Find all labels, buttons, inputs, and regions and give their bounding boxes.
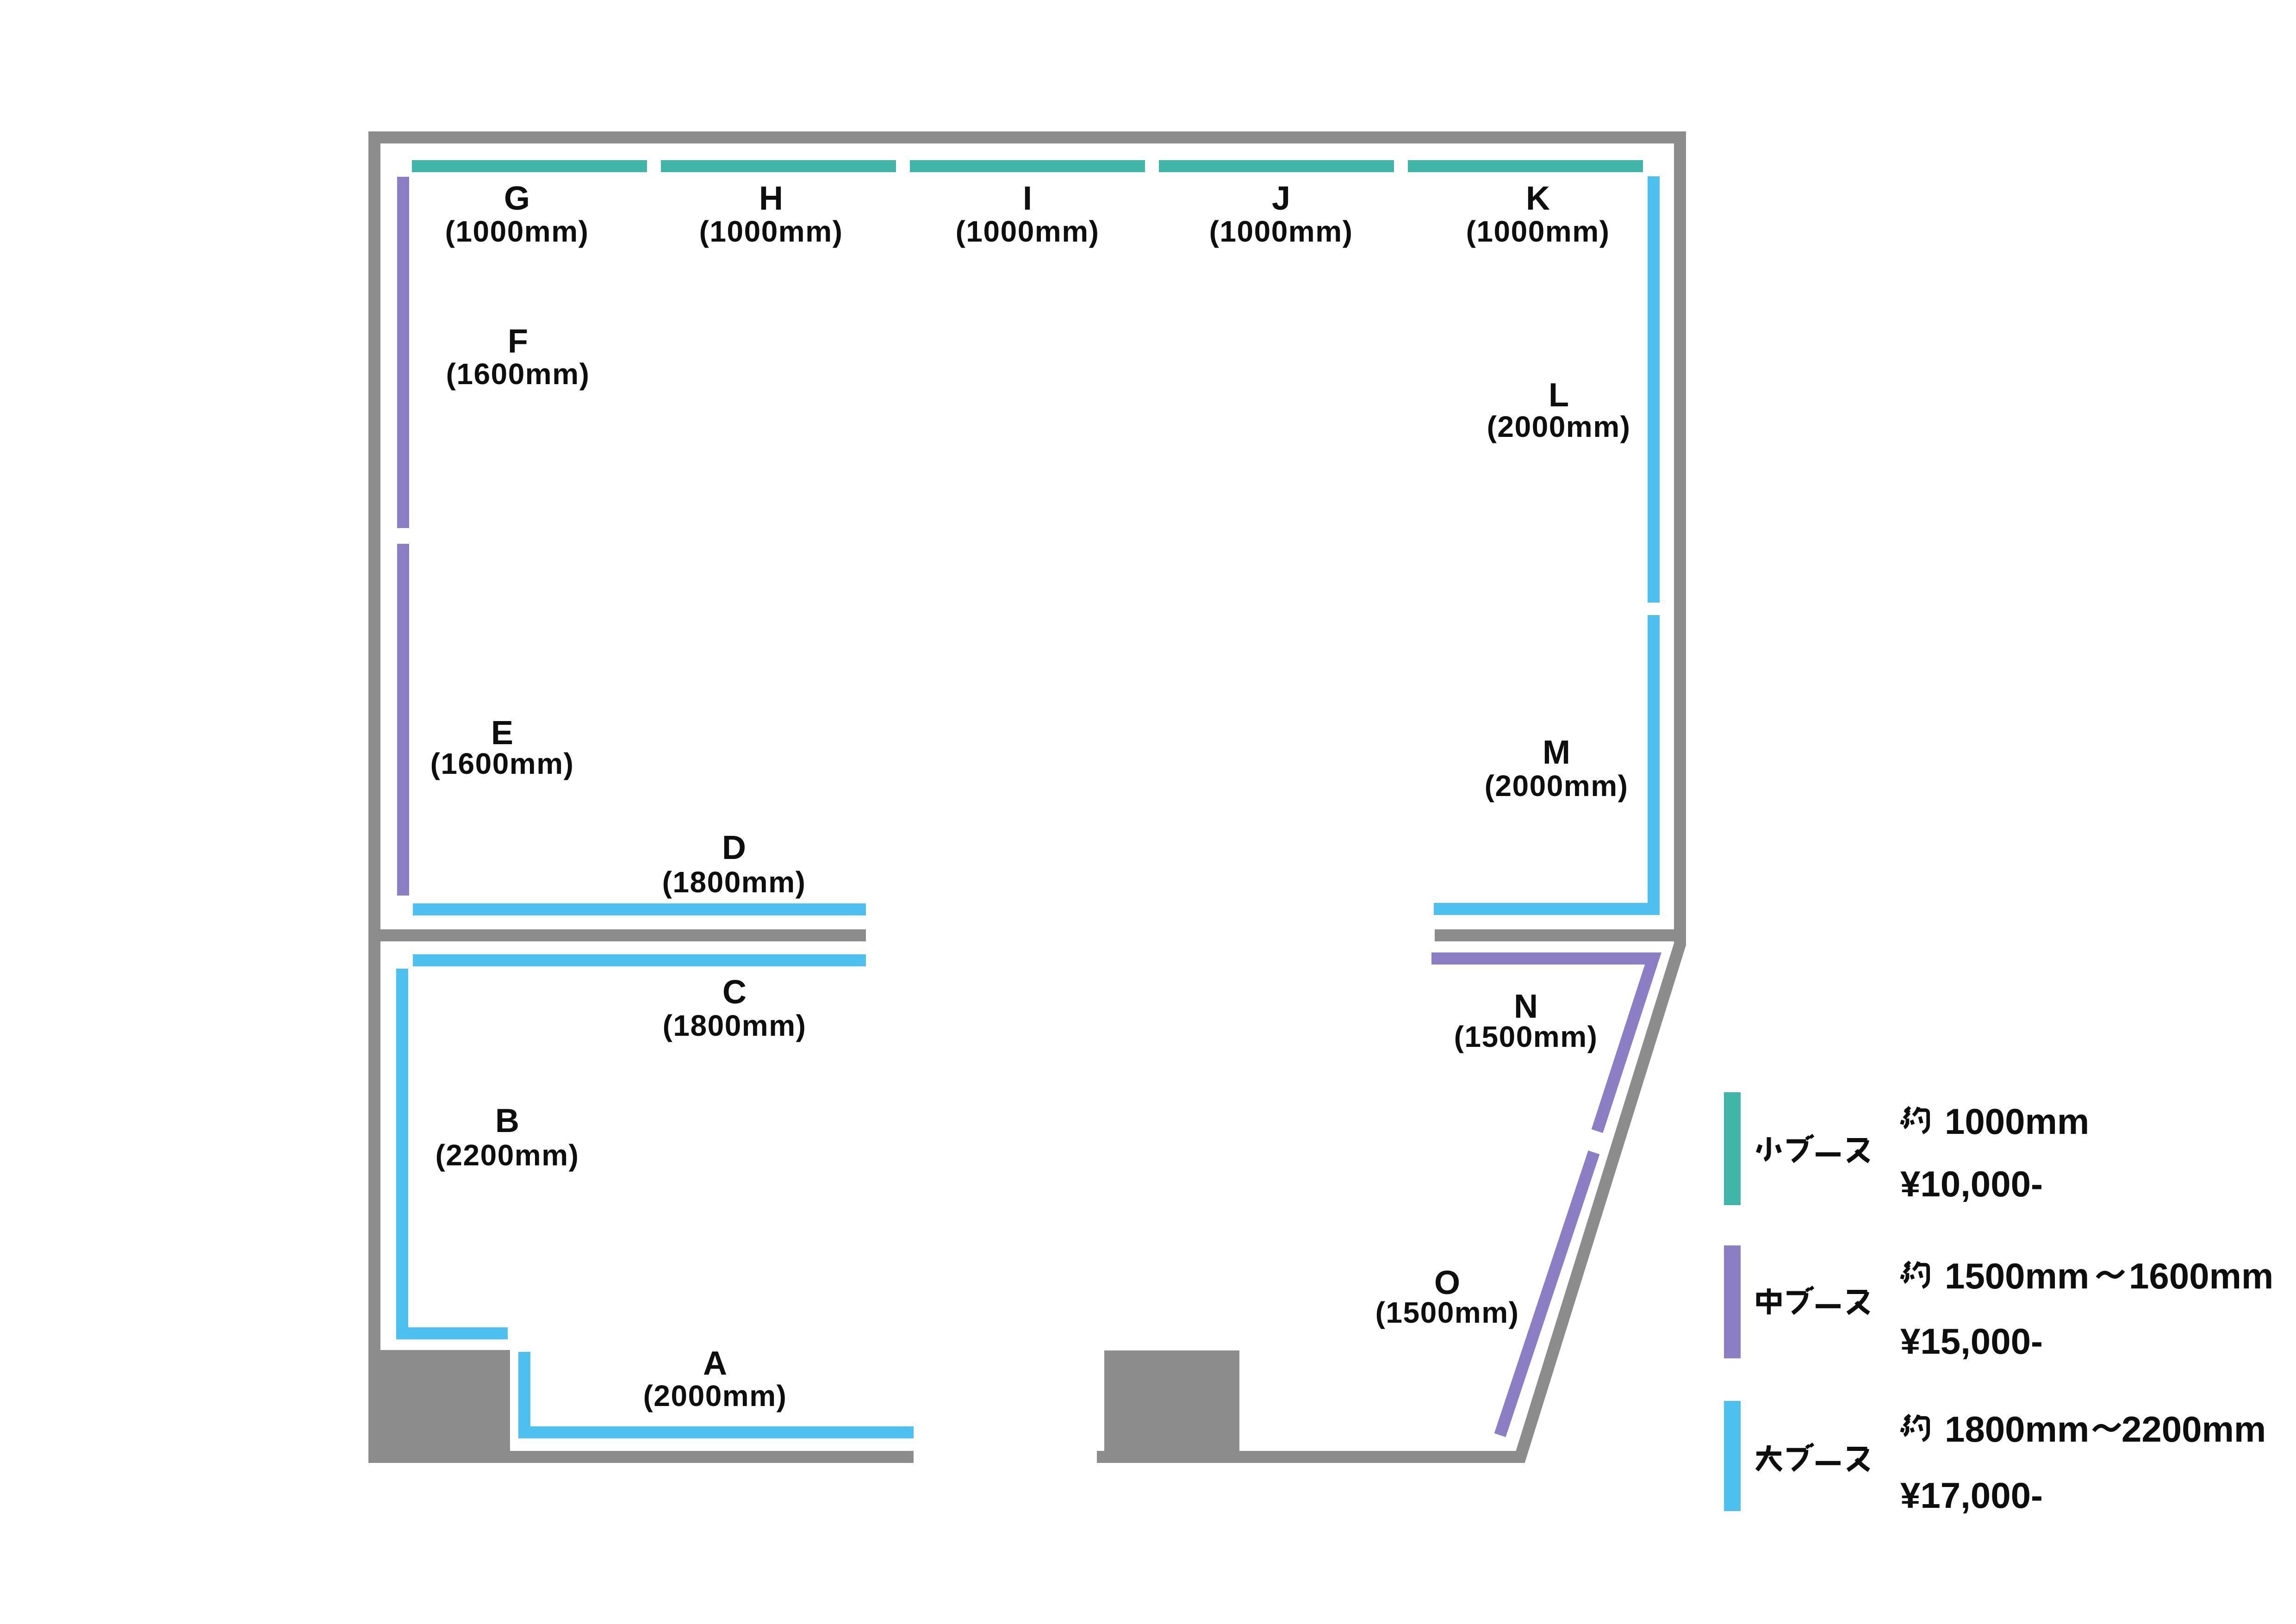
svg-text:J: J [1272,180,1290,217]
svg-text:(1800mm): (1800mm) [662,865,806,899]
svg-text:F: F [508,323,528,360]
svg-text:C: C [722,974,747,1011]
svg-text:G: G [504,180,530,217]
svg-text:M: M [1543,734,1570,771]
svg-text:K: K [1526,180,1550,217]
svg-text:(1000mm): (1000mm) [1209,215,1353,248]
svg-text:N: N [1514,988,1538,1025]
svg-text:1500mm: 1500mm [1945,1256,2089,1296]
svg-text:1800mm: 1800mm [1945,1409,2089,1450]
svg-text:D: D [722,829,746,866]
svg-text:(2000mm): (2000mm) [1487,410,1631,443]
svg-text:(1500mm): (1500mm) [1375,1296,1519,1329]
svg-text:A: A [703,1345,727,1382]
svg-text:¥15,000-: ¥15,000- [1900,1321,2043,1362]
svg-text:H: H [759,180,783,217]
svg-text:1000mm: 1000mm [1945,1101,2089,1142]
svg-text:(1800mm): (1800mm) [663,1009,807,1042]
svg-text:I: I [1023,180,1032,217]
svg-text:(2000mm): (2000mm) [643,1379,787,1412]
svg-text:(2000mm): (2000mm) [1485,769,1629,803]
svg-text:(1600mm): (1600mm) [430,747,574,780]
svg-text:¥17,000-: ¥17,000- [1900,1475,2043,1516]
svg-text:(1000mm): (1000mm) [1466,215,1610,248]
svg-text:(1600mm): (1600mm) [446,357,590,391]
svg-text:(1000mm): (1000mm) [956,215,1100,248]
svg-text:(1500mm): (1500mm) [1454,1020,1598,1053]
svg-text:¥10,000-: ¥10,000- [1900,1164,2043,1204]
svg-text:2200mm: 2200mm [2122,1409,2266,1450]
svg-text:1600mm: 1600mm [2129,1256,2273,1296]
svg-text:B: B [495,1102,519,1139]
svg-text:(1000mm): (1000mm) [445,215,589,248]
svg-text:L: L [1549,377,1569,414]
svg-text:E: E [491,715,513,752]
svg-text:(1000mm): (1000mm) [699,215,843,248]
svg-text:(2200mm): (2200mm) [436,1139,579,1172]
